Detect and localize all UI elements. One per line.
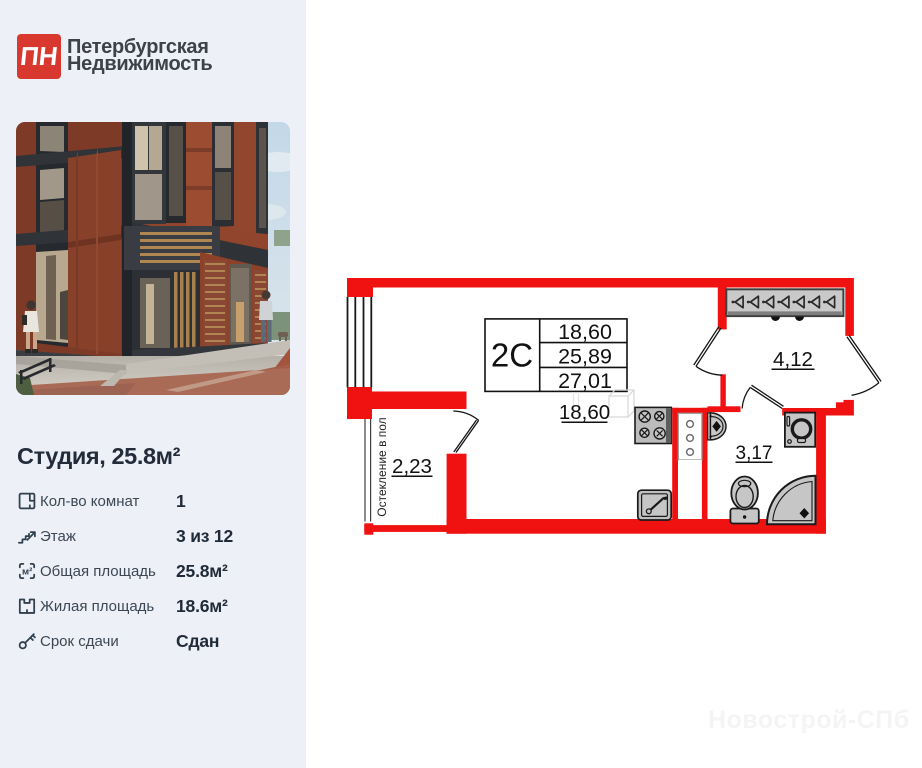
svg-text:18,60: 18,60: [559, 401, 610, 424]
svg-text:4,12: 4,12: [773, 348, 813, 371]
svg-text:2,23: 2,23: [392, 455, 432, 478]
svg-text:25,89: 25,89: [558, 344, 612, 368]
svg-text:27,01: 27,01: [558, 369, 612, 393]
svg-text:3,17: 3,17: [736, 443, 773, 464]
svg-text:18,60: 18,60: [558, 320, 612, 344]
svg-text:Остекление в пол: Остекление в пол: [375, 417, 389, 516]
svg-text:2С: 2С: [491, 337, 533, 374]
